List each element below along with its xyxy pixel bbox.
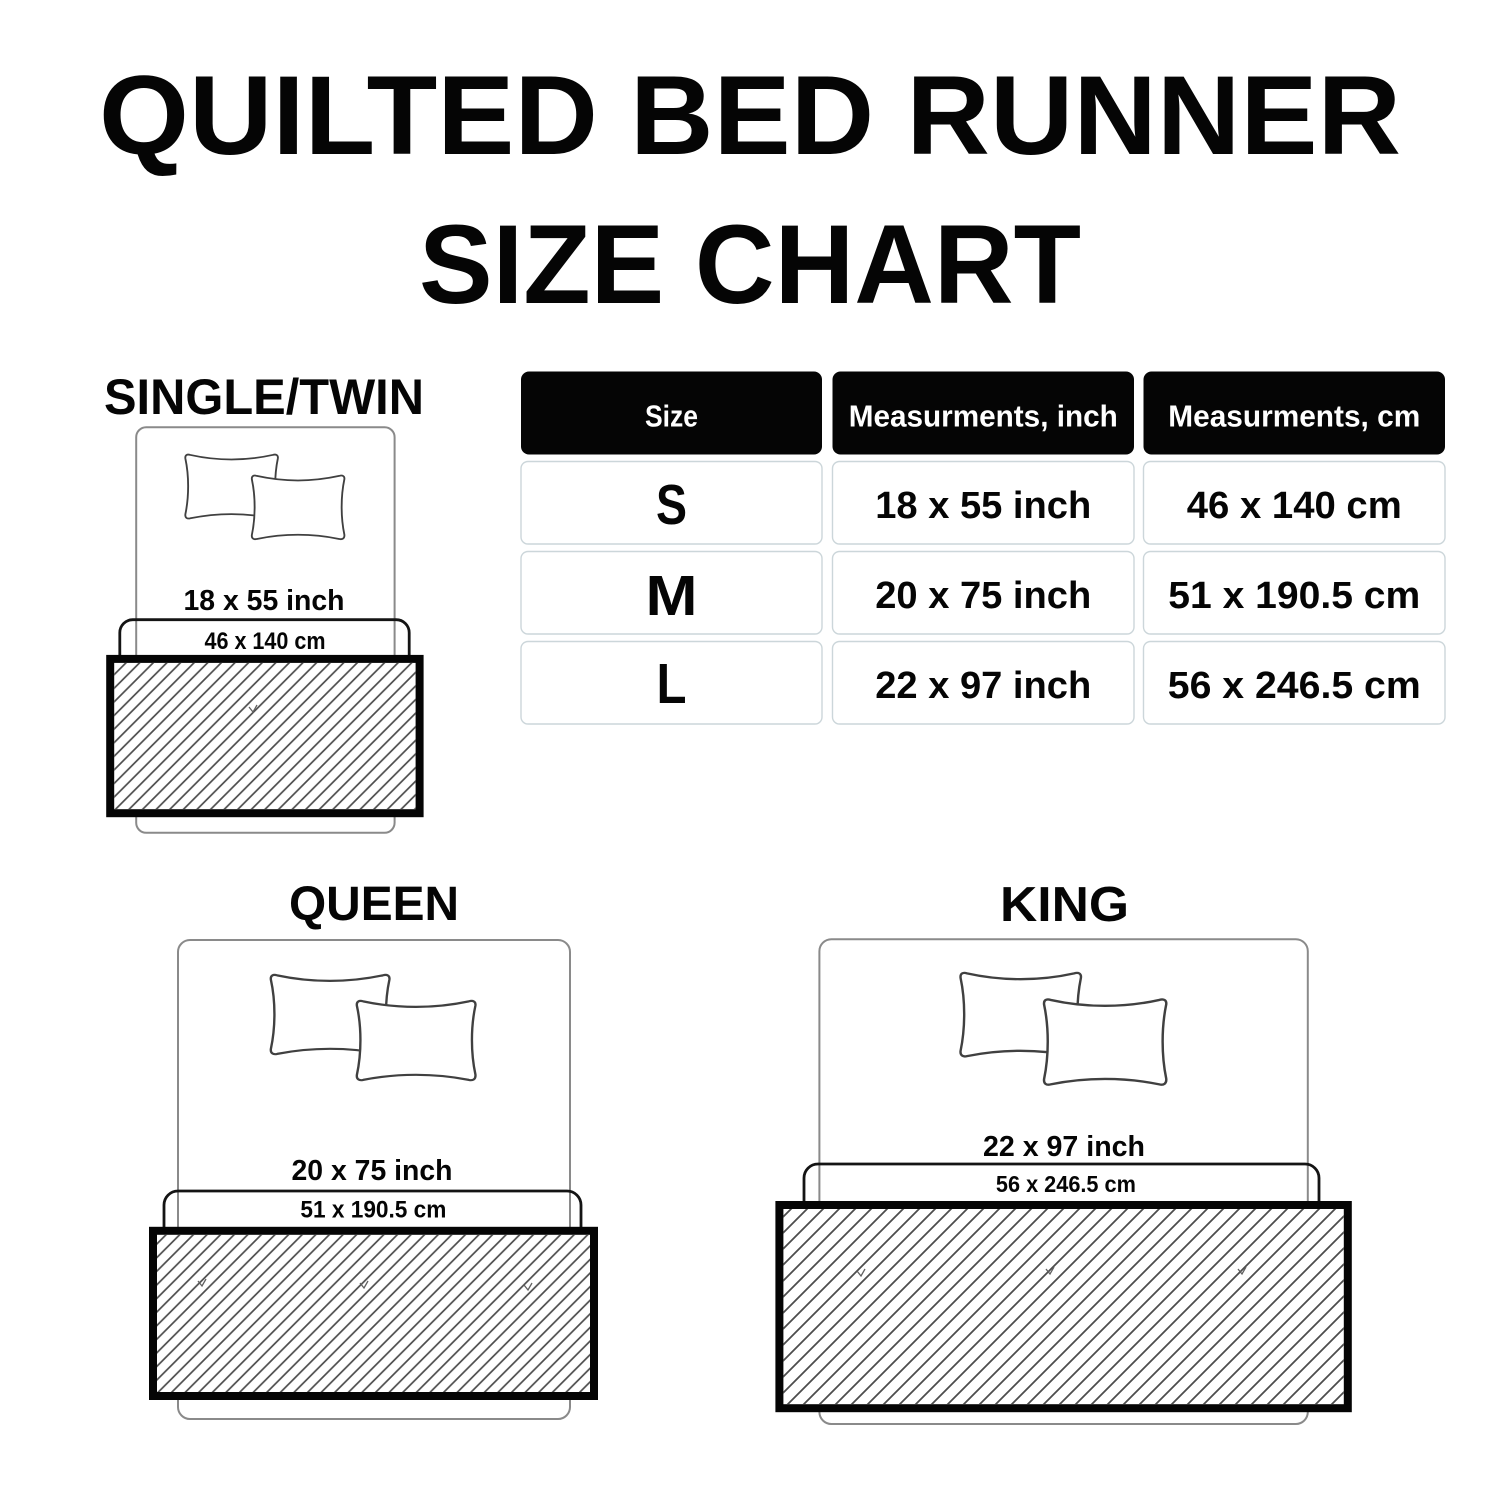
- svg-text:Measurments, cm: Measurments, cm: [1168, 399, 1420, 434]
- svg-text:56 x 246.5 cm: 56 x 246.5 cm: [996, 1171, 1136, 1197]
- svg-text:S: S: [656, 473, 687, 536]
- svg-text:Measurments, inch: Measurments, inch: [849, 399, 1118, 434]
- svg-text:QUILTED BED RUNNER: QUILTED BED RUNNER: [99, 53, 1401, 178]
- svg-text:51 x 190.5 cm: 51 x 190.5 cm: [300, 1197, 446, 1224]
- svg-text:18 x 55 inch: 18 x 55 inch: [184, 585, 345, 617]
- svg-text:56 x 246.5 cm: 56 x 246.5 cm: [1168, 665, 1421, 707]
- svg-text:KING: KING: [1000, 878, 1129, 932]
- svg-text:20 x 75 inch: 20 x 75 inch: [875, 575, 1091, 617]
- svg-text:46 x 140 cm: 46 x 140 cm: [1187, 485, 1402, 527]
- svg-text:51 x 190.5 cm: 51 x 190.5 cm: [1168, 575, 1420, 617]
- svg-text:QUEEN: QUEEN: [289, 878, 459, 931]
- svg-text:20 x 75 inch: 20 x 75 inch: [292, 1155, 453, 1187]
- svg-text:Size: Size: [645, 399, 698, 434]
- svg-text:M: M: [646, 564, 698, 627]
- svg-text:SINGLE/TWIN: SINGLE/TWIN: [104, 369, 424, 425]
- svg-text:18 x 55 inch: 18 x 55 inch: [875, 485, 1091, 527]
- svg-text:SIZE CHART: SIZE CHART: [419, 202, 1081, 327]
- svg-text:46 x 140 cm: 46 x 140 cm: [205, 628, 326, 655]
- svg-text:L: L: [657, 652, 687, 715]
- svg-text:22 x 97 inch: 22 x 97 inch: [875, 665, 1091, 707]
- svg-text:22 x 97 inch: 22 x 97 inch: [983, 1131, 1145, 1163]
